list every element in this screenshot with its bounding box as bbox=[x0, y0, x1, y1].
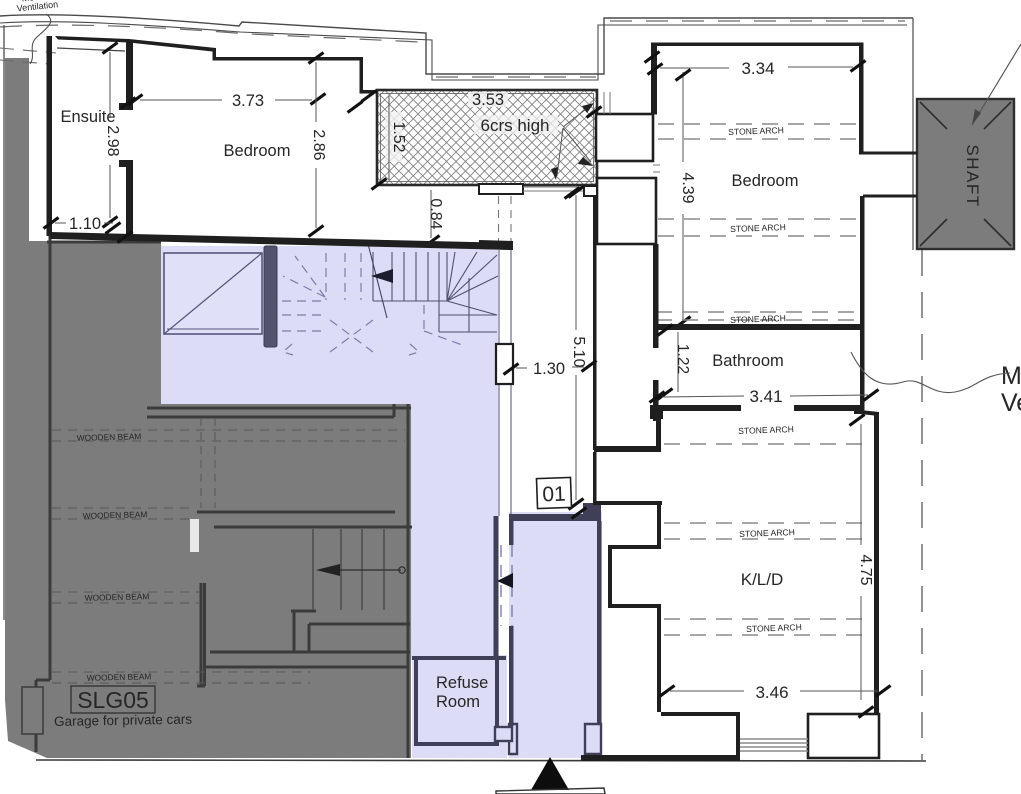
svg-text:Refuse: Refuse bbox=[436, 674, 488, 692]
svg-text:Bathroom: Bathroom bbox=[712, 352, 784, 370]
svg-text:WOODEN BEAM: WOODEN BEAM bbox=[77, 431, 142, 443]
svg-text:0.84: 0.84 bbox=[427, 198, 444, 229]
svg-text:SHAFT: SHAFT bbox=[963, 144, 982, 207]
svg-text:1.22: 1.22 bbox=[674, 344, 691, 374]
svg-text:SLG05: SLG05 bbox=[77, 687, 149, 713]
svg-text:STONE ARCH: STONE ARCH bbox=[738, 424, 794, 436]
svg-text:4.75: 4.75 bbox=[857, 554, 874, 585]
svg-text:2.86: 2.86 bbox=[310, 129, 327, 160]
svg-text:2.98: 2.98 bbox=[104, 125, 121, 156]
svg-text:3.46: 3.46 bbox=[755, 683, 788, 702]
svg-text:3.53: 3.53 bbox=[472, 91, 504, 109]
svg-text:STONE ARCH: STONE ARCH bbox=[739, 527, 795, 539]
svg-text:K/L/D: K/L/D bbox=[741, 570, 784, 589]
svg-text:Bedroom: Bedroom bbox=[732, 172, 799, 190]
svg-text:3.41: 3.41 bbox=[749, 387, 782, 406]
svg-text:M: M bbox=[1001, 362, 1021, 390]
svg-text:STONE ARCH: STONE ARCH bbox=[728, 125, 784, 137]
svg-text:STONE ARCH: STONE ARCH bbox=[730, 313, 786, 325]
svg-text:WOODEN BEAM: WOODEN BEAM bbox=[83, 509, 148, 521]
svg-text:Room: Room bbox=[436, 693, 480, 711]
svg-text:1.10: 1.10 bbox=[69, 215, 101, 233]
svg-text:3.34: 3.34 bbox=[741, 59, 774, 78]
svg-text:5.10: 5.10 bbox=[570, 336, 587, 367]
svg-text:01: 01 bbox=[542, 483, 566, 507]
svg-text:3.73: 3.73 bbox=[232, 92, 264, 110]
svg-text:6crs high: 6crs high bbox=[481, 116, 550, 135]
svg-text:Garage for private cars: Garage for private cars bbox=[54, 712, 193, 729]
svg-text:STONE ARCH: STONE ARCH bbox=[730, 222, 786, 234]
svg-text:Bedroom: Bedroom bbox=[224, 142, 291, 160]
svg-text:Ve: Ve bbox=[1001, 389, 1021, 417]
svg-text:4.39: 4.39 bbox=[679, 172, 696, 203]
svg-text:STONE ARCH: STONE ARCH bbox=[746, 622, 802, 634]
svg-text:1.52: 1.52 bbox=[390, 121, 407, 152]
svg-text:1.30: 1.30 bbox=[533, 360, 565, 378]
svg-text:Ensuite: Ensuite bbox=[60, 108, 115, 126]
svg-text:WOODEN BEAM: WOODEN BEAM bbox=[85, 591, 150, 603]
svg-text:WOODEN BEAM: WOODEN BEAM bbox=[87, 671, 152, 683]
